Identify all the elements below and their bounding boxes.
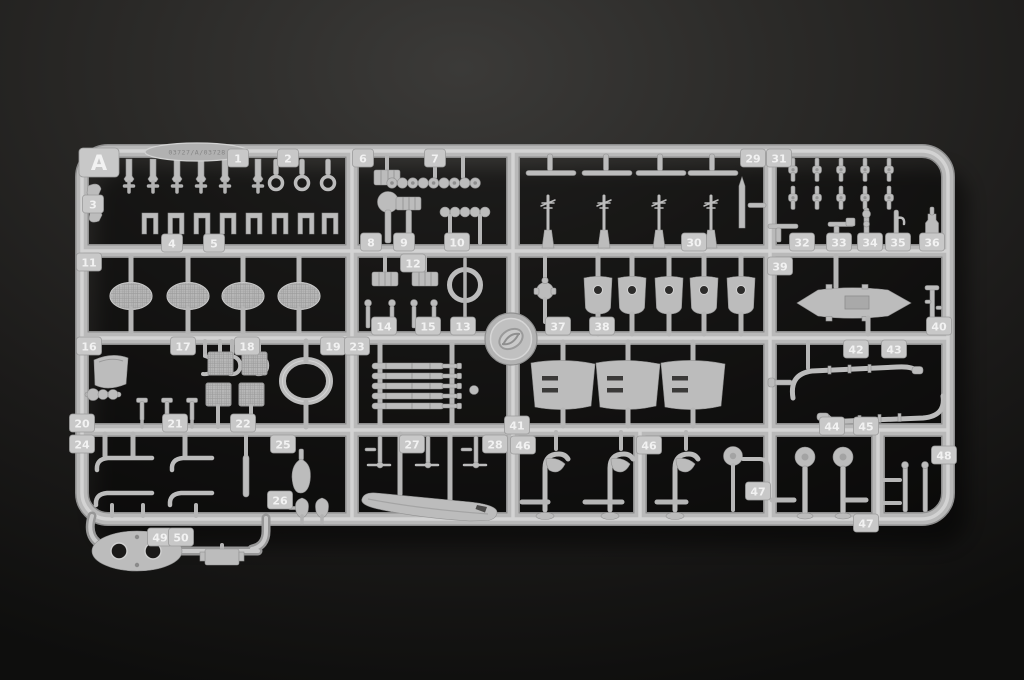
- svg-text:2: 2: [284, 153, 292, 166]
- part-number-tag: 12: [401, 254, 426, 272]
- svg-text:39: 39: [772, 261, 787, 274]
- svg-text:47: 47: [750, 486, 765, 499]
- svg-text:23: 23: [349, 341, 364, 354]
- part-number-tag: 27: [400, 435, 425, 453]
- part-number-tag: 42: [844, 340, 869, 358]
- part-number-tag: 4: [162, 234, 183, 252]
- ball-part: [378, 192, 399, 213]
- svg-text:32: 32: [794, 237, 809, 250]
- svg-text:27: 27: [404, 439, 419, 452]
- part-number-tag: 45: [854, 417, 879, 435]
- part-number-tag: 18: [235, 337, 260, 355]
- part-number-tag: 29: [741, 149, 766, 167]
- part-number-tag: 50: [169, 528, 194, 546]
- part-number-tag: 22: [231, 414, 256, 432]
- part-number-tag: 26: [268, 491, 293, 509]
- svg-text:9: 9: [400, 237, 408, 250]
- part-number-tag: 25: [271, 435, 296, 453]
- part-number-tag: 3: [83, 195, 104, 213]
- svg-text:7: 7: [431, 153, 439, 166]
- part-number-tag: 48: [932, 446, 957, 464]
- svg-text:25: 25: [275, 439, 290, 452]
- svg-text:16: 16: [81, 341, 97, 354]
- svg-text:43: 43: [886, 344, 901, 357]
- sprue-letter: A: [91, 151, 108, 175]
- part-number-tag: 47: [854, 514, 879, 532]
- part-number-tag: 39: [768, 257, 793, 275]
- part-number-tag: 46: [511, 436, 536, 454]
- part-number-tag: 30: [682, 233, 707, 251]
- part-number-tag: 6: [353, 149, 374, 167]
- svg-text:17: 17: [175, 341, 190, 354]
- part-number-tag: 8: [361, 233, 382, 251]
- svg-text:45: 45: [858, 421, 873, 434]
- svg-text:38: 38: [594, 321, 609, 334]
- part-number-tag: 11: [77, 253, 102, 271]
- svg-text:11: 11: [81, 257, 96, 270]
- part-number-tag: 36: [920, 233, 945, 251]
- svg-text:3: 3: [89, 199, 97, 212]
- part-number-tag: 47: [746, 482, 771, 500]
- sprue-photo-canvas: A 03727/A/03728 123456789101112141513161…: [0, 0, 1024, 680]
- svg-text:12: 12: [405, 258, 420, 271]
- part-number-tag: 2: [278, 149, 299, 167]
- part-number-tag: 41: [505, 416, 530, 434]
- curved-plate-part: [94, 355, 128, 388]
- part-number-tag: 33: [827, 233, 852, 251]
- part-number-tag: 43: [882, 340, 907, 358]
- part-number-tag: 21: [163, 414, 188, 432]
- part-number-tag: 35: [886, 233, 911, 251]
- svg-text:20: 20: [74, 418, 90, 431]
- part-number-tag: 5: [204, 234, 225, 252]
- part-number-tag: 23: [345, 337, 370, 355]
- svg-text:14: 14: [376, 321, 392, 334]
- svg-text:40: 40: [931, 321, 947, 334]
- part-number-tag: 9: [394, 233, 415, 251]
- sprue-letter-tag: A: [79, 148, 119, 177]
- part-number-tag: 44: [820, 417, 845, 435]
- svg-text:35: 35: [890, 237, 905, 250]
- svg-text:10: 10: [449, 237, 465, 250]
- svg-text:30: 30: [686, 237, 702, 250]
- part-number-tag: 19: [321, 337, 346, 355]
- svg-text:31: 31: [771, 153, 786, 166]
- svg-text:50: 50: [173, 532, 189, 545]
- svg-text:48: 48: [936, 450, 951, 463]
- part-number-tag: 1: [228, 149, 249, 167]
- brand-medallion: [485, 313, 537, 365]
- sprue-photo: A 03727/A/03728 123456789101112141513161…: [0, 0, 1024, 680]
- svg-text:46: 46: [515, 440, 531, 453]
- pencil-part: [739, 177, 745, 228]
- svg-text:4: 4: [168, 238, 176, 251]
- svg-text:19: 19: [325, 341, 340, 354]
- svg-text:29: 29: [745, 153, 760, 166]
- part-number-tag: 31: [767, 149, 792, 167]
- disc-row-part: [387, 178, 481, 188]
- svg-text:26: 26: [272, 495, 288, 508]
- svg-text:5: 5: [210, 238, 218, 251]
- svg-text:36: 36: [924, 237, 940, 250]
- svg-text:37: 37: [550, 321, 565, 334]
- svg-text:22: 22: [235, 418, 250, 431]
- part-number-tag: 13: [451, 317, 476, 335]
- svg-text:24: 24: [74, 439, 90, 452]
- part-number-tag: 28: [483, 435, 508, 453]
- svg-text:18: 18: [239, 341, 254, 354]
- part-number-tag: 15: [416, 317, 441, 335]
- svg-text:1: 1: [234, 153, 242, 166]
- svg-text:21: 21: [167, 418, 182, 431]
- svg-text:44: 44: [824, 421, 840, 434]
- svg-text:49: 49: [152, 532, 167, 545]
- part-number-tag: 14: [372, 317, 397, 335]
- part-number-tag: 34: [858, 233, 883, 251]
- svg-text:46: 46: [641, 440, 657, 453]
- part-number-tag: 16: [77, 337, 102, 355]
- part-number-tag: 10: [445, 233, 470, 251]
- svg-text:42: 42: [848, 344, 863, 357]
- part-number-tag: 7: [425, 149, 446, 167]
- svg-text:13: 13: [455, 321, 470, 334]
- box-part: [205, 549, 239, 565]
- mold-stamp-text: 03727/A/03728: [168, 149, 225, 157]
- svg-text:6: 6: [359, 153, 367, 166]
- part-number-tag: 40: [927, 317, 952, 335]
- part-number-tag: 24: [70, 435, 95, 453]
- part-number-tag: 38: [590, 317, 615, 335]
- svg-text:47: 47: [858, 518, 873, 531]
- svg-text:8: 8: [367, 237, 375, 250]
- svg-text:28: 28: [487, 439, 502, 452]
- part-number-tag: 17: [171, 337, 196, 355]
- part-number-tag: 46: [637, 436, 662, 454]
- svg-text:34: 34: [862, 237, 878, 250]
- svg-text:15: 15: [420, 321, 435, 334]
- part-number-tag: 20: [70, 414, 95, 432]
- svg-text:41: 41: [509, 420, 524, 433]
- svg-text:33: 33: [831, 237, 846, 250]
- part-number-tag: 32: [790, 233, 815, 251]
- part-number-tag: 37: [546, 317, 571, 335]
